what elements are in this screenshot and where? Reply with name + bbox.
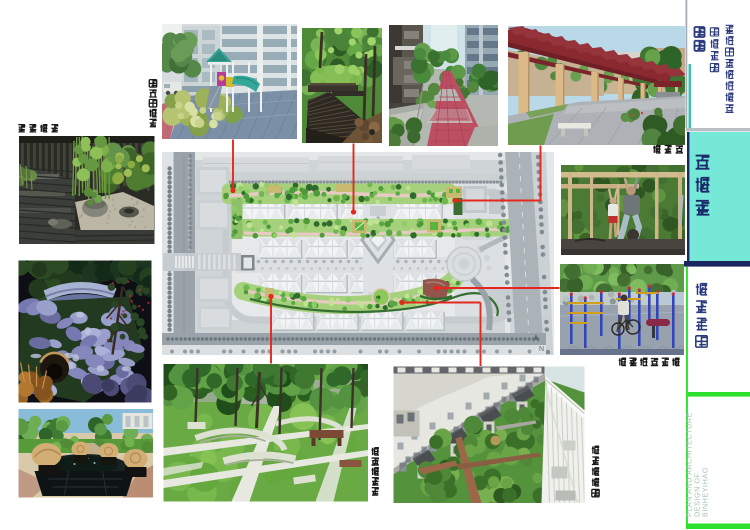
svg-text:N: N bbox=[539, 346, 544, 353]
svg-text:BINHEYIHAO: BINHEYIHAO bbox=[701, 467, 710, 517]
